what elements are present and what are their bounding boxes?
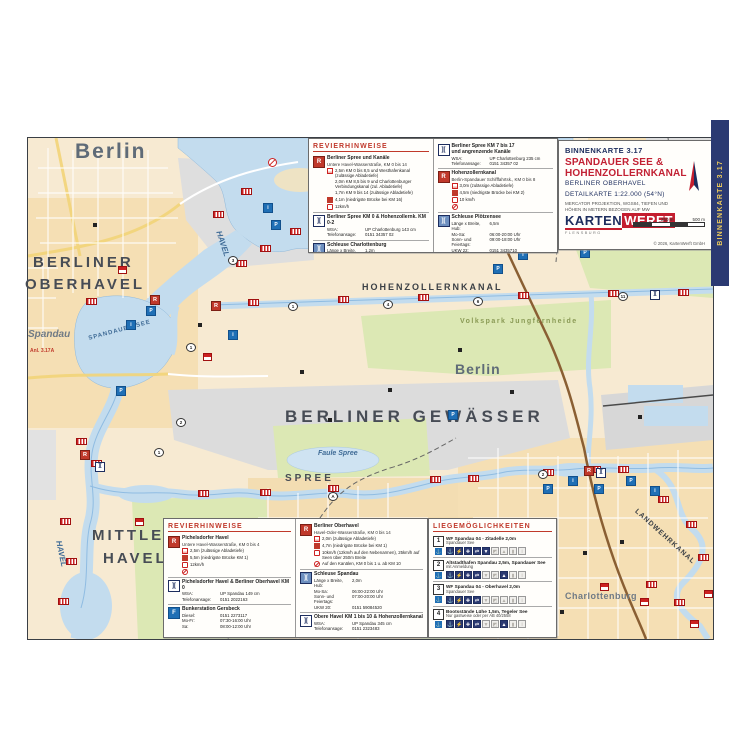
legend-revierhinweise-top: REVIERHINWEISE RBerliner Spree und Kanäl… [308, 138, 558, 253]
legend-kv-value: 07:00-20:00 Uhr [352, 594, 383, 605]
legend-entry-text: HohenzollernkanalBerlin-Spandauer Schiff… [452, 171, 554, 210]
legend-entry-text: Berliner Spree KM 0 & Hohenzollernk. KM … [327, 215, 429, 237]
legend-heading: REVIERHINWEISE [168, 522, 291, 532]
legend-entry-subtitle: Untere Havel-Wasserstraße, KM 0 bis 4 [182, 542, 291, 547]
legend-info-row: 3,0m (zulässige Abladetiefe) [452, 183, 554, 189]
amenity-icon: ◩ [491, 571, 499, 579]
amenity-icon: i [518, 547, 526, 555]
legend-kv-row: Länge x Breite, Hub:6,5m [452, 221, 554, 232]
legend-info-row: 2,0m KM 8,5 bis 9 und Charlottenburger V… [327, 179, 429, 189]
legend-info-row [182, 569, 291, 575]
amenity-icon: i [518, 596, 526, 604]
legend-kv-value: 0151 2323483 [352, 626, 379, 631]
legend-kv-value: 1,2m [365, 248, 375, 252]
ban-icon [452, 204, 458, 210]
anchor-icon: ⚓ [435, 548, 442, 555]
legend-kv-row: Länge x Breite, Hub:1,2m [327, 248, 429, 252]
amenity-icon: ▲ [500, 547, 508, 555]
legend-kv-key: Telefonansage: [182, 597, 220, 602]
mooring-badge: 4⚓ [433, 609, 444, 628]
legend-info-row: 12km/h [327, 204, 429, 210]
amenity-icon: ⇄ [473, 571, 481, 579]
legend-kv-value: 09:00-18:00 Uhr [490, 237, 521, 248]
amenity-icon: ⚡ [455, 571, 463, 579]
legend-kv-key: Telefonansage: [314, 626, 352, 631]
depth-icon [327, 168, 333, 174]
legend-entry-text: Berliner OberhavelHavel-Oder-Wasserstraß… [314, 524, 423, 567]
mooring-subtitle: mit Anmeldung [446, 565, 552, 570]
legend-info-text: 2,5m KM 0 bis 8,5 und Westhafenkanal (zu… [335, 168, 429, 178]
amenity-icon: ▼ [482, 547, 490, 555]
legend-info-text: 2,5m (zulässige Abladetiefe) [190, 548, 244, 554]
scale-label-250: 250 m [661, 217, 674, 222]
amenity-row: ⚓⚡✚⇄▼◩▲▮i [446, 620, 552, 628]
amenity-icon: ◩ [491, 620, 499, 628]
scale-bar: 250 m 500 m [633, 217, 705, 227]
amenity-icon: ▲ [500, 571, 508, 579]
amenity-icon: ✚ [464, 620, 472, 628]
amenity-icon: ◩ [491, 596, 499, 604]
speed-icon [452, 197, 458, 203]
mooring-subtitle: Spandauer See [446, 541, 552, 546]
legend-entry-text: Berliner Spree und KanäleUntere Havel-Wa… [327, 156, 429, 210]
legend-kv-key: Länge x Breite, Hub: [327, 248, 365, 252]
legend-info-row: 10 km/h [452, 197, 554, 203]
legend-info-row: 4,1m (niedrigste Brücke bei KM 16) [327, 197, 429, 203]
legend-entry-text: Pichelsdorfer HavelUntere Havel-Wasserst… [182, 536, 291, 575]
legend-top-col2: ][Berliner Spree KM 7 bis 17und angrenze… [438, 142, 554, 252]
amenity-icon: ⇄ [473, 596, 481, 604]
legend-kv-row: Sa:08:00-12:00 Uhr [182, 624, 291, 629]
title-block: BINNENKARTE 3.17 SPANDAUER SEE & HOHENZO… [558, 140, 712, 250]
edge-tab-label: BINNENKARTE 3.17 [717, 160, 724, 246]
legend-kv-key: Telefonansage: [452, 161, 490, 166]
legend-heading: LIEGEMÖGLICHKEITEN [433, 522, 552, 532]
mooring-text: WF Spandau 04 - Zitadelle 2,0mSpandauer … [446, 536, 552, 555]
legend-kv-key: Sonn- und Feiertags: [314, 594, 352, 605]
amenity-icon: ▼ [482, 620, 490, 628]
spacer-icon [327, 190, 333, 196]
depth-icon [314, 536, 320, 542]
legend-info-text: 4,5m (niedrigste Brücke bei KM 2) [460, 190, 525, 196]
legend-info-text: 2,0m (zulässige Abladetiefe) [322, 536, 376, 542]
ban-icon [182, 569, 188, 575]
legend-entry: ][Berliner Spree KM 7 bis 17und angrenze… [438, 142, 554, 168]
legend-entry: ][Schleuse CharlottenburgLänge x Breite,… [313, 240, 429, 252]
legend-info-text: 12km/h [190, 562, 204, 568]
lock-icon: ][ [438, 144, 450, 156]
legend-info-row: Auf den Kanälen, KM 0 bis 1 u. ab KM 10 [314, 561, 423, 567]
amenity-icon: ▼ [482, 571, 490, 579]
bridge-icon [327, 197, 333, 203]
mooring-entry: 1⚓WF Spandau 04 - Zitadelle 2,0mSpandaue… [433, 534, 552, 557]
anchor-icon: ⚓ [435, 596, 442, 603]
amenity-icon: ◩ [491, 547, 499, 555]
amenity-icon: ▼ [482, 596, 490, 604]
legend-entry: ][Pichelsdorfer Havel & Berliner Oberhav… [168, 577, 291, 604]
legend-kv-row: UKW 20:0151 59084520 [314, 605, 423, 610]
legend-entry-text: Bunkerstation GersbeckDiesel:0151 227311… [182, 607, 291, 629]
mooring-subtitle: Nur gastweise oder per AB 40/2558 [446, 614, 552, 619]
legend-info-text: 5,5m (niedrigste Brücke KM 1) [190, 555, 248, 561]
legend-kv-value: 0151 3435710 [490, 248, 517, 252]
mooring-entry: 2⚓Altstadthafen Spandau 2,5m, Spandauer … [433, 557, 552, 581]
revier-badge-icon: R [300, 524, 312, 536]
revier-badge-icon: R [438, 171, 450, 183]
legend-entry: RBerliner OberhavelHavel-Oder-Wasserstra… [300, 522, 423, 569]
legend-kv-key: Sonn- und Feiertags: [452, 237, 490, 248]
amenity-icon: ▮ [509, 596, 517, 604]
legend-entry-title: Pichelsdorfer Havel & Berliner Oberhavel… [182, 580, 291, 592]
legend-entry: RHohenzollernkanalBerlin-Spandauer Schif… [438, 168, 554, 212]
legend-kv-row: Sonn- und Feiertags:09:00-18:00 Uhr [452, 237, 554, 248]
amenity-icon: ⇄ [473, 620, 481, 628]
legend-info-text: 2,0m KM 8,5 bis 9 und Charlottenburger V… [335, 179, 429, 189]
chart-title: SPANDAUER SEE & HOHENZOLLERNKANAL [565, 158, 705, 179]
legend-info-row: 10km/h (12km/h auf den Nebenarmen), 25km… [314, 550, 423, 560]
legend-info-row: 5,5m (niedrigste Brücke KM 1) [182, 555, 291, 561]
legend-kv-value: 0151 34357 02 [365, 232, 394, 237]
north-arrow-icon [687, 161, 701, 197]
legend-moorings: LIEGEMÖGLICHKEITEN 1⚓WF Spandau 04 - Zit… [428, 518, 557, 638]
legend-info-row: 1,7m KM 9 bis 14 (zulässige Abladetiefe) [327, 190, 429, 196]
legend-entry: ][Schleuse SpandauLänge x Breite, Hub:2,… [300, 569, 423, 612]
mooring-badge: 1⚓ [433, 536, 444, 555]
lock-icon: ][ [300, 572, 312, 584]
amenity-row: ⚓⚡✚⇄▼◩▲▮i [446, 547, 552, 555]
legend-entry: ][Berliner Spree KM 0 & Hohenzollernk. K… [313, 212, 429, 239]
amenity-icon: i [518, 571, 526, 579]
legend-kv-key: Länge x Breite, Hub: [452, 221, 490, 232]
legend-entry-title: Berliner Spree KM 0 & Hohenzollernk. KM … [327, 215, 429, 227]
legend-info-text: 4,7m (niedrigste Brücke bei KM 1) [322, 543, 387, 549]
amenity-icon: ✚ [464, 547, 472, 555]
legend-entry: FBunkerstation GersbeckDiesel:0151 22731… [168, 604, 291, 631]
legend-info-text: 10km/h (12km/h auf den Nebenarmen), 25km… [322, 550, 423, 560]
legend-info-row: 12km/h [182, 562, 291, 568]
revier-badge-icon: R [168, 536, 180, 548]
legend-kv-key: Sa: [182, 624, 220, 629]
amenity-icon: ⚓ [446, 571, 454, 579]
chart-series: BINNENKARTE 3.17 [565, 146, 705, 155]
legend-info-text: 1,7m KM 9 bis 14 (zulässige Abladetiefe) [335, 190, 413, 196]
legend-info-text: 12km/h [335, 204, 349, 210]
amenity-icon: ▮ [509, 547, 517, 555]
logo-text-karten: KARTEN [565, 213, 622, 230]
legend-info-row [452, 204, 554, 210]
amenity-icon: ✚ [464, 596, 472, 604]
legend-entry: RBerliner Spree und KanäleUntere Havel-W… [313, 154, 429, 212]
legend-heading: REVIERHINWEISE [313, 142, 429, 152]
depth-icon [182, 548, 188, 554]
speed-icon [327, 204, 333, 210]
lock-icon: ][ [168, 580, 180, 592]
legend-info-text: 4,1m (niedrigste Brücke bei KM 16) [335, 197, 402, 203]
legend-entry-subtitle: Untere Havel-Wasserstraße, KM 0 bis 14 [327, 162, 429, 167]
legend-info-row: 2,5m (zulässige Abladetiefe) [182, 548, 291, 554]
legend-kv-value: 2,0m [352, 578, 362, 589]
speed-icon [314, 550, 320, 556]
legend-kv-key: Telefonansage: [327, 232, 365, 237]
legend-entry: ][Schleuse PlötzenseeLänge x Breite, Hub… [438, 212, 554, 252]
chart-projection-note: MERCATOR PROJEKTION, WGS84, TIEFEN UND H… [565, 201, 675, 212]
legend-entry-text: Pichelsdorfer Havel & Berliner Oberhavel… [182, 580, 291, 602]
revier-badge-icon: R [313, 156, 325, 168]
copyright: © 2026, KartenWerft GmbH [654, 241, 705, 246]
legend-entry-subtitle: Havel-Oder-Wasserstraße, KM 0 bis 14 [314, 530, 423, 535]
legend-info-row: 2,0m (zulässige Abladetiefe) [314, 536, 423, 542]
amenity-icon: ▲ [500, 620, 508, 628]
amenity-icon: ▲ [500, 596, 508, 604]
lock-icon: ][ [438, 215, 450, 227]
amenity-icon: ⚡ [455, 620, 463, 628]
fuel-icon: F [168, 607, 180, 619]
logo-text-city: FLENSBURG [565, 231, 675, 235]
amenity-icon: ⇄ [473, 547, 481, 555]
legend-kv-row: Telefonansage:0151 2022163 [182, 597, 291, 602]
mooring-subtitle: Spandauer See [446, 590, 552, 595]
legend-entry-text: Schleuse SpandauLänge x Breite, Hub:2,0m… [314, 572, 423, 610]
legend-kv-row: UKW 22:0151 3435710 [452, 248, 554, 252]
depth-icon [452, 183, 458, 189]
legend-info-text: 3,0m (zulässige Abladetiefe) [460, 183, 514, 189]
legend-kv-key: Länge x Breite, Hub: [314, 578, 352, 589]
amenity-icon: ▮ [509, 571, 517, 579]
amenity-icon: ⚡ [455, 596, 463, 604]
mooring-number: 4 [433, 609, 444, 620]
mooring-number: 2 [433, 560, 444, 571]
legend-revierhinweise-bottom: REVIERHINWEISE RPichelsdorfer HavelUnter… [163, 518, 428, 638]
mooring-badge: 3⚓ [433, 584, 444, 603]
amenity-icon: ✚ [464, 571, 472, 579]
legend-entry: RPichelsdorfer HavelUntere Havel-Wassers… [168, 534, 291, 577]
chart-subtitle: BERLINER OBERHAVEL [565, 180, 705, 187]
legend-entry: ][Obere Havel KM 1 bis 10 & Hohenzollern… [300, 612, 423, 633]
legend-kv-row: Länge x Breite, Hub:2,0m [314, 578, 423, 589]
bridge-icon [182, 555, 188, 561]
mooring-number: 1 [433, 536, 444, 547]
lock-icon: ][ [313, 243, 325, 252]
legend-kv-row: Telefonansage:0151 2323483 [314, 626, 423, 631]
legend-kv-key: UKW 22: [452, 248, 490, 252]
mooring-entry: 3⚓WF Spandau 04 - Oberhavel 2,0mSpandaue… [433, 581, 552, 605]
amenity-row: ⚓⚡✚⇄▼◩▲▮i [446, 571, 552, 579]
legend-kv-value: 0151 34357 02 [490, 161, 519, 166]
legend-entry-text: Schleuse PlötzenseeLänge x Breite, Hub:6… [452, 215, 554, 252]
mooring-badge: 2⚓ [433, 560, 444, 579]
speed-icon [182, 562, 188, 568]
anchor-icon: ⚓ [435, 572, 442, 579]
edge-tab-banner: BINNENKARTE 3.17 [711, 120, 729, 286]
legend-kv-row: Telefonansage:0151 34357 02 [452, 161, 554, 166]
mooring-text: WF Spandau 04 - Oberhavel 2,0mSpandauer … [446, 584, 552, 603]
ban-icon [314, 561, 320, 567]
amenity-icon: i [518, 620, 526, 628]
legend-top-col1: RBerliner Spree und KanäleUntere Havel-W… [313, 154, 429, 252]
chart-scale-note: DETAILKARTE 1:22.000 (54°N) [565, 191, 705, 198]
legend-entry-text: Berliner Spree KM 7 bis 17und angrenzend… [452, 144, 554, 166]
amenity-row: ⚓⚡✚⇄▼◩▲▮i [446, 596, 552, 604]
legend-bottom-col1: RPichelsdorfer HavelUntere Havel-Wassers… [168, 534, 291, 631]
legend-entry-text: Obere Havel KM 1 bis 10 & Hohenzollernka… [314, 615, 423, 631]
amenity-icon: ⚓ [446, 620, 454, 628]
mooring-entries: 1⚓WF Spandau 04 - Zitadelle 2,0mSpandaue… [433, 534, 552, 630]
mooring-entry: 4⚓Bootsstände Lühe 1,5m, Tegeler SeeNur … [433, 606, 552, 630]
amenity-icon: ⚓ [446, 596, 454, 604]
legend-kv-value: 08:00-12:00 Uhr [220, 624, 251, 629]
legend-kv-key: UKW 20: [314, 605, 352, 610]
amenity-icon: ▮ [509, 620, 517, 628]
legend-info-row: 4,5m (niedrigste Brücke bei KM 2) [452, 190, 554, 196]
anchor-icon: ⚓ [435, 621, 442, 628]
mooring-number: 3 [433, 584, 444, 595]
legend-info-row: 2,5m KM 0 bis 8,5 und Westhafenkanal (zu… [327, 168, 429, 178]
lock-icon: ][ [313, 215, 325, 227]
mooring-text: Bootsstände Lühe 1,5m, Tegeler SeeNur ga… [446, 609, 552, 628]
bridge-icon [452, 190, 458, 196]
legend-info-row: 4,7m (niedrigste Brücke bei KM 1) [314, 543, 423, 549]
legend-kv-row: Telefonansage:0151 34357 02 [327, 232, 429, 237]
legend-entry-subtitle: Berlin-Spandauer Schifffahrtsk., KM 0 bi… [452, 177, 554, 182]
legend-info-text: Auf den Kanälen, KM 0 bis 1 u. ab KM 10 [322, 561, 401, 567]
legend-kv-row: Sonn- und Feiertags:07:00-20:00 Uhr [314, 594, 423, 605]
legend-kv-value: 6,5m [490, 221, 500, 232]
spacer-icon [327, 179, 333, 185]
legend-entry-text: Schleuse CharlottenburgLänge x Breite, H… [327, 243, 429, 252]
scale-label-500: 500 m [692, 217, 705, 222]
legend-bottom-col2: RBerliner OberhavelHavel-Oder-Wasserstra… [300, 522, 423, 634]
mooring-text: Altstadthafen Spandau 2,5m, Spandauer Se… [446, 560, 552, 579]
legend-kv-value: 0151 59084520 [352, 605, 382, 610]
amenity-icon: ⚡ [455, 547, 463, 555]
legend-info-text: 10 km/h [460, 197, 475, 203]
amenity-icon: ⚓ [446, 547, 454, 555]
lock-icon: ][ [300, 615, 312, 627]
scale-bar-graphic [633, 222, 705, 227]
legend-kv-value: 0151 2022163 [220, 597, 247, 602]
chart-sheet: BerlinBERLINEROBERHAVELSpandauSPANDAUER … [0, 0, 750, 750]
bridge-icon [314, 543, 320, 549]
